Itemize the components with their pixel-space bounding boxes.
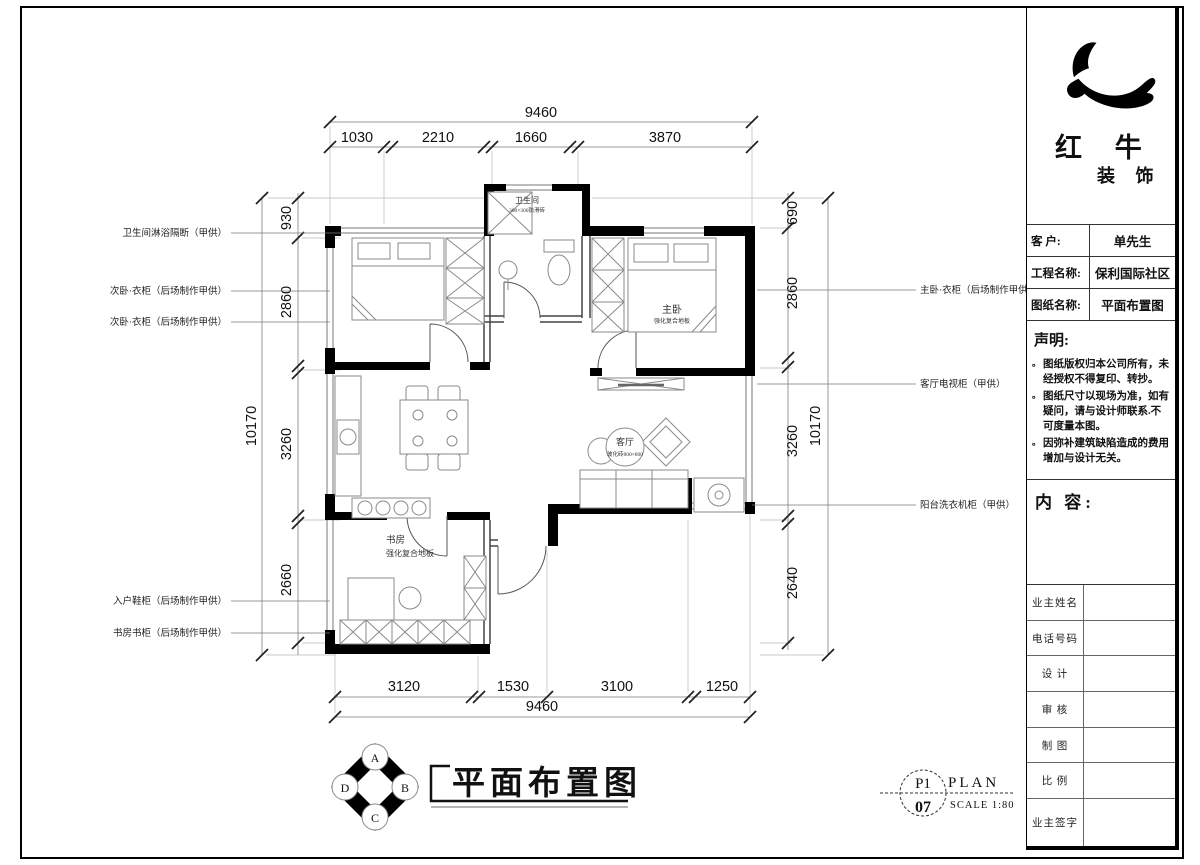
brand-suffix: 装 饰 xyxy=(1097,162,1162,188)
living-finish-label: 玻化砖800×800 xyxy=(607,450,643,458)
owner-name-field xyxy=(1083,585,1175,620)
floor-plan-drawing: 9460 1030 2210 1660 3870 3120 1530 3100 … xyxy=(0,0,1030,865)
living-room-label: 客厅 xyxy=(616,436,634,447)
dim-bottom-1: 3120 xyxy=(388,679,420,695)
sheet-type: PLAN xyxy=(948,775,999,791)
dim-right-overall: 10170 xyxy=(808,406,824,446)
sig-row-scale: 比 例 xyxy=(1027,763,1175,799)
bathroom-label: 卫生间 xyxy=(515,195,539,205)
statement-section: 声明: 图纸版权归本公司所有，未经授权不得复印、转抄。 图纸尺寸以现场为准，如有… xyxy=(1027,321,1175,479)
company-logo-section: 红 牛 装 饰 xyxy=(1027,8,1175,224)
design-label: 设 计 xyxy=(1027,656,1083,691)
master-finish-label: 强化复合地板 xyxy=(654,317,690,325)
sheet-scale: SCALE 1:80 xyxy=(950,800,1015,811)
review-label: 审 核 xyxy=(1027,692,1083,727)
callout-second-bedroom-wardrobe-1: 次卧·衣柜（后场制作甲供） xyxy=(110,285,227,297)
info-row-sheet-name: 图纸名称: 平面布置图 xyxy=(1027,289,1175,321)
sig-row-review: 审 核 xyxy=(1027,692,1175,728)
sheet-name-label: 图纸名称: xyxy=(1027,289,1089,320)
owner-signature-label: 业主签字 xyxy=(1027,799,1083,846)
client-label: 客 户: xyxy=(1027,225,1089,256)
dim-top-1: 1030 xyxy=(341,130,373,146)
callout-tv-cabinet: 客厅电视柜（甲供） xyxy=(920,378,1006,390)
dim-right-3: 3260 xyxy=(785,425,801,457)
info-row-project: 工程名称: 保利国际社区 xyxy=(1027,257,1175,289)
master-bedroom-label: 主卧 xyxy=(662,303,682,316)
scale-label: 比 例 xyxy=(1027,763,1083,798)
compass-b: B xyxy=(401,781,409,795)
phone-field xyxy=(1083,621,1175,656)
sheet-reference: P1 07 PLAN SCALE 1:80 xyxy=(880,770,1015,816)
dim-top-4: 3870 xyxy=(649,130,681,146)
owner-signature-field xyxy=(1083,799,1175,846)
dim-right-4: 2640 xyxy=(785,567,801,599)
client-value: 单先生 xyxy=(1089,225,1175,256)
dim-top-overall: 9460 xyxy=(525,105,557,121)
dim-right-2: 2860 xyxy=(785,277,801,309)
compass-symbol: A B C D xyxy=(331,743,419,831)
statement-item: 图纸尺寸以现场为准，如有疑问，请与设计师联系.不可度量本图。 xyxy=(1034,390,1171,434)
info-row-client: 客 户: 单先生 xyxy=(1027,225,1175,257)
dim-top-3: 1660 xyxy=(515,130,547,146)
bathroom-finish-label: 300×300防滑砖 xyxy=(509,206,546,214)
drawing-title: 平面布置图 xyxy=(452,765,642,802)
statement-item: 图纸版权归本公司所有，未经授权不得复印、转抄。 xyxy=(1034,358,1171,387)
sheet-page: P1 xyxy=(915,776,931,792)
scale-field xyxy=(1083,763,1175,798)
callout-master-wardrobe: 主卧·衣柜（后场制作甲供） xyxy=(920,284,1030,296)
statement-heading: 声明: xyxy=(1034,329,1171,350)
draft-label: 制 图 xyxy=(1027,728,1083,763)
study-label: 书房 xyxy=(386,534,405,546)
dim-bottom-3: 3100 xyxy=(601,679,633,695)
dim-left-3: 3260 xyxy=(279,428,295,460)
sig-row-owner-name: 业主姓名 xyxy=(1027,585,1175,621)
bull-logo-icon xyxy=(1041,18,1161,126)
callout-entry-shoe-cabinet: 入户鞋柜（后场制作甲供） xyxy=(113,595,227,607)
review-field xyxy=(1083,692,1175,727)
content-heading: 内 容: xyxy=(1035,488,1175,513)
sig-row-owner-signature: 业主签字 xyxy=(1027,799,1175,846)
owner-name-label: 业主姓名 xyxy=(1027,585,1083,620)
dim-left-4: 2660 xyxy=(279,564,295,596)
callout-study-bookcase: 书房书柜（后场制作甲供） xyxy=(113,627,227,639)
compass-c: C xyxy=(371,811,379,825)
design-field xyxy=(1083,656,1175,691)
dim-bottom-2: 1530 xyxy=(497,679,529,695)
project-name-value: 保利国际社区 xyxy=(1089,257,1175,288)
dim-right-1: 690 xyxy=(785,201,801,225)
project-name-label: 工程名称: xyxy=(1027,257,1089,288)
dim-bottom-4: 1250 xyxy=(706,679,738,695)
callout-shower-partition: 卫生间淋浴隔断（甲供） xyxy=(122,227,227,239)
sig-row-design: 设 计 xyxy=(1027,656,1175,692)
callout-washer-cabinet: 阳台洗衣机柜（甲供） xyxy=(920,499,1015,511)
study-finish-label: 强化复合地板 xyxy=(386,548,434,558)
sig-row-draft: 制 图 xyxy=(1027,728,1175,764)
phone-label: 电话号码 xyxy=(1027,621,1083,656)
dim-bottom-overall: 9460 xyxy=(526,699,558,715)
statement-item: 因弥补建筑缺陷造成的费用增加与设计无关。 xyxy=(1034,437,1171,466)
project-info-table: 客 户: 单先生 工程名称: 保利国际社区 图纸名称: 平面布置图 xyxy=(1027,224,1175,321)
callout-second-bedroom-wardrobe-2: 次卧·衣柜（后场制作甲供） xyxy=(110,316,227,328)
dim-left-overall: 10170 xyxy=(244,406,260,446)
dim-top-2: 2210 xyxy=(422,130,454,146)
title-block-panel: 红 牛 装 饰 客 户: 单先生 工程名称: 保利国际社区 图纸名称: 平面布置… xyxy=(1026,7,1179,850)
dim-left-1: 930 xyxy=(279,206,295,230)
sheet-name-value: 平面布置图 xyxy=(1089,289,1175,320)
sheet-number: 07 xyxy=(915,799,931,816)
compass-d: D xyxy=(341,781,350,795)
brand-name: 红 牛 xyxy=(1055,126,1155,165)
interior-walls xyxy=(484,236,590,644)
content-section: 内 容: xyxy=(1027,479,1175,584)
sig-row-phone: 电话号码 xyxy=(1027,621,1175,657)
furniture xyxy=(335,192,744,644)
draft-field xyxy=(1083,728,1175,763)
drawing-title-block: 平面布置图 xyxy=(431,765,642,807)
compass-a: A xyxy=(371,751,380,765)
signature-table: 业主姓名 电话号码 设 计 审 核 制 图 比 例 业主签字 xyxy=(1027,584,1175,846)
